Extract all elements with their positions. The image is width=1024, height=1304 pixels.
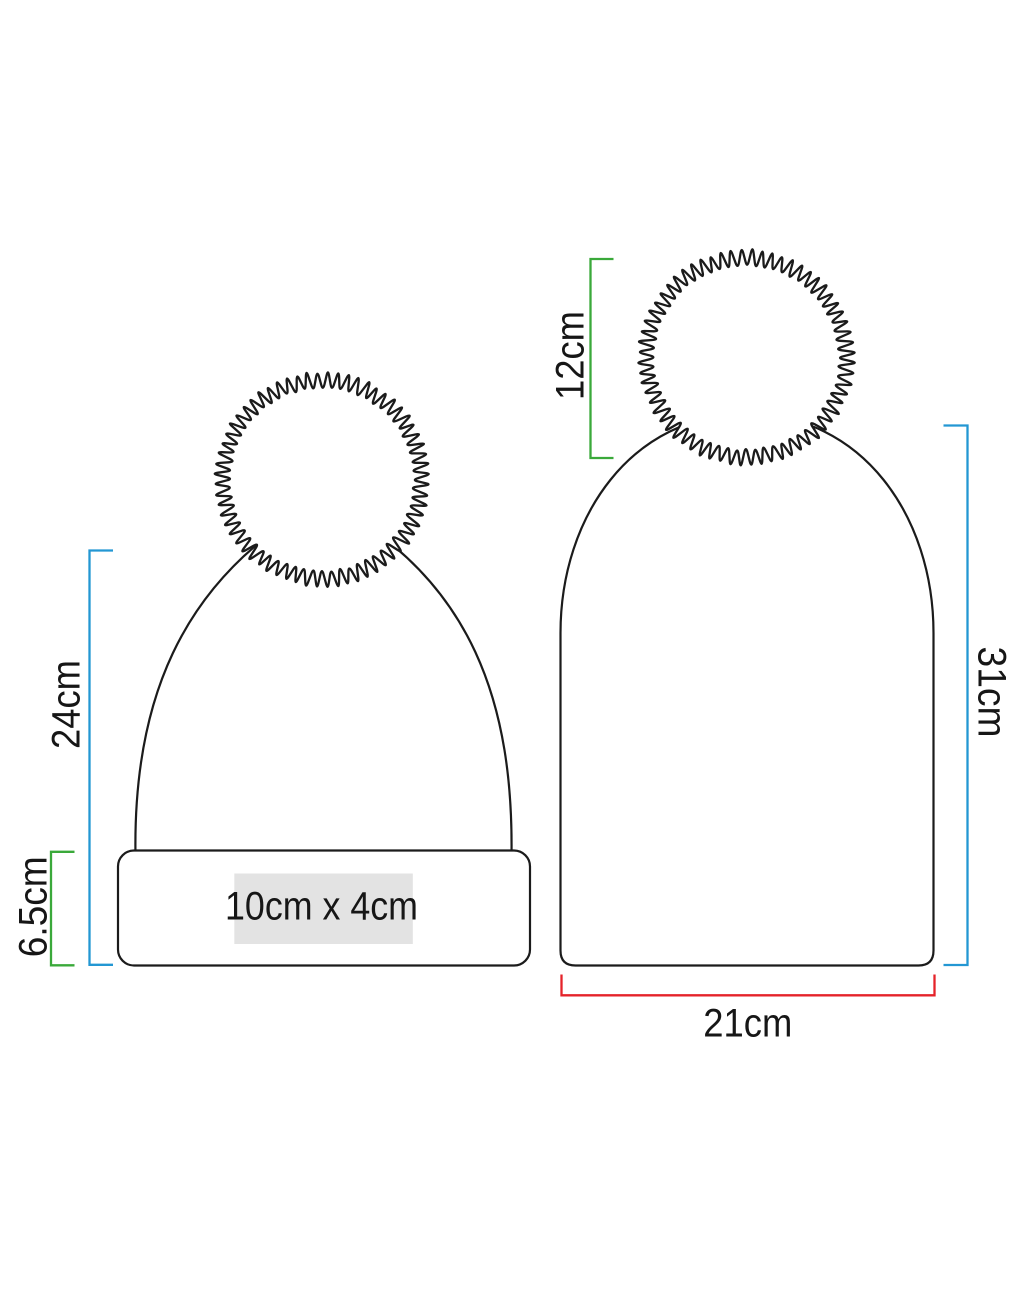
svg-text:12cm: 12cm (549, 311, 593, 400)
svg-text:6.5cm: 6.5cm (12, 856, 56, 957)
svg-text:24cm: 24cm (45, 660, 89, 749)
svg-text:31cm: 31cm (970, 647, 1014, 738)
svg-text:21cm: 21cm (703, 1001, 792, 1045)
svg-text:10cm x 4cm: 10cm x 4cm (225, 884, 418, 928)
